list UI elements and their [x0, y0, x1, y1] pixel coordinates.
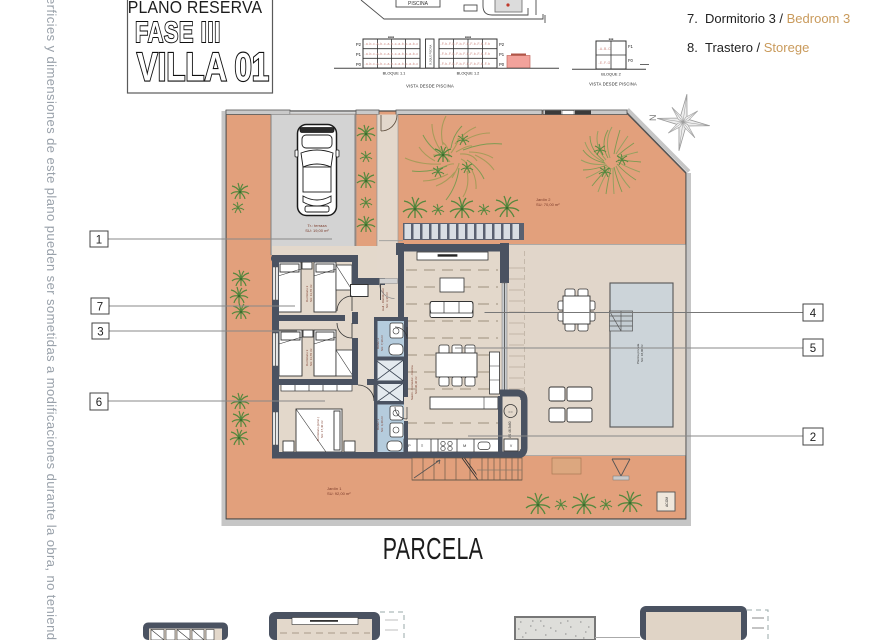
svg-text:■■■■: ■■■■ [388, 36, 395, 39]
svg-text:PISCINA: PISCINA [408, 1, 429, 7]
svg-text:BLOQUE 2: BLOQUE 2 [601, 72, 620, 77]
svg-text:VISTA DESDE PISCINA: VISTA DESDE PISCINA [406, 84, 454, 89]
svg-text:SU: 18,00 m²: SU: 18,00 m² [640, 344, 644, 362]
svg-text:P1: P1 [356, 52, 362, 57]
svg-text:..E..F..G: ..E..F..G [598, 61, 611, 65]
svg-text:==: == [508, 409, 513, 414]
svg-text:4: 4 [810, 308, 817, 320]
svg-text:■■■■: ■■■■ [465, 36, 472, 39]
svg-text:SU: 11,70 m²: SU: 11,70 m² [309, 285, 313, 302]
svg-text:5: 5 [810, 343, 816, 355]
svg-text:ACOM: ACOM [665, 497, 669, 507]
svg-text:..a..b..c..a..b..c..a..b..c..a: ..a..b..c..a..b..c..a..b..c..a..b..c..a.… [364, 62, 418, 66]
svg-text:3: 3 [97, 327, 103, 339]
svg-text:VILLA 01: VILLA 01 [137, 45, 269, 90]
svg-text:6: 6 [96, 397, 102, 409]
svg-text:N: N [648, 115, 658, 122]
svg-text:SU: 11,70 m²: SU: 11,70 m² [309, 349, 313, 366]
svg-text:SU: 17,40 m²: SU: 17,40 m² [320, 420, 324, 438]
svg-text:SU: 70,00 m²: SU: 70,00 m² [536, 202, 560, 207]
svg-text:SU: 19,00 m²: SU: 19,00 m² [305, 228, 329, 233]
svg-text:SU: 7,30 m²: SU: 7,30 m² [380, 335, 384, 351]
svg-text:2: 2 [810, 432, 816, 444]
svg-text:..F..b..F..b..F..b..F..b..F..b: ..F..b..F..b..F..b..F..b..F..b..F..b..F.… [440, 62, 490, 66]
svg-text:..F..b..F..b..F..b..F..b..F..b: ..F..b..F..b..F..b..F..b..F..b..F..b..F.… [440, 42, 490, 46]
svg-text:Dormitorio 3 / Bedroom 3: Dormitorio 3 / Bedroom 3 [705, 11, 850, 26]
svg-text:..a..b..c..a..b..c..a..b..c..a: ..a..b..c..a..b..c..a..b..c..a..b..c..a.… [364, 42, 418, 46]
svg-text:Trastero / Storege: Trastero / Storege [705, 40, 809, 55]
svg-text:AS 46.5x80: AS 46.5x80 [508, 421, 512, 438]
svg-text:F1: F1 [628, 44, 634, 49]
svg-text:SU: 3,31 m²: SU: 3,31 m² [385, 292, 389, 308]
svg-text:PARCELA: PARCELA [383, 531, 484, 566]
svg-text:P2: P2 [499, 42, 505, 47]
svg-text:P2: P2 [356, 42, 362, 47]
svg-text:SU: 92,00 m²: SU: 92,00 m² [327, 491, 351, 496]
svg-text:P1: P1 [499, 52, 505, 57]
svg-text:SU: 30,30 m²: SU: 30,30 m² [414, 376, 418, 394]
svg-text:F0: F0 [628, 58, 634, 63]
svg-text:■■■: ■■■ [609, 38, 614, 41]
svg-text:8.: 8. [687, 40, 698, 55]
svg-text:erficies y dimensiones de este: erficies y dimensiones de este plano pue… [44, 0, 59, 640]
svg-text:..a..b..c..a..b..c..a..b..c..a: ..a..b..c..a..b..c..a..b..c..a..b..c..a.… [364, 52, 418, 56]
svg-text:1: 1 [96, 235, 102, 247]
svg-text:BLOQUE 1.1: BLOQUE 1.1 [383, 71, 406, 76]
svg-text:7: 7 [97, 302, 103, 314]
svg-text:..F..b..F..b..F..b..F..b..F..b: ..F..b..F..b..F..b..F..b..F..b..F..b..F.… [440, 52, 490, 56]
svg-text:PLANO RESERVA: PLANO RESERVA [128, 0, 263, 17]
svg-text:P0: P0 [356, 62, 362, 67]
svg-text:P0: P0 [499, 62, 505, 67]
svg-text:SU: 4,40 m²: SU: 4,40 m² [380, 416, 384, 432]
svg-text:..A..B..C: ..A..B..C [598, 47, 611, 51]
svg-text:7.: 7. [687, 11, 698, 26]
svg-text:P: P [408, 443, 411, 448]
svg-text:BLOQUE PISCINA: BLOQUE PISCINA [430, 44, 433, 65]
svg-text:VISTA DESDE PISCINA: VISTA DESDE PISCINA [589, 82, 637, 87]
svg-text:BLOQUE 1.2: BLOQUE 1.2 [457, 71, 480, 76]
svg-text:M: M [463, 443, 466, 448]
